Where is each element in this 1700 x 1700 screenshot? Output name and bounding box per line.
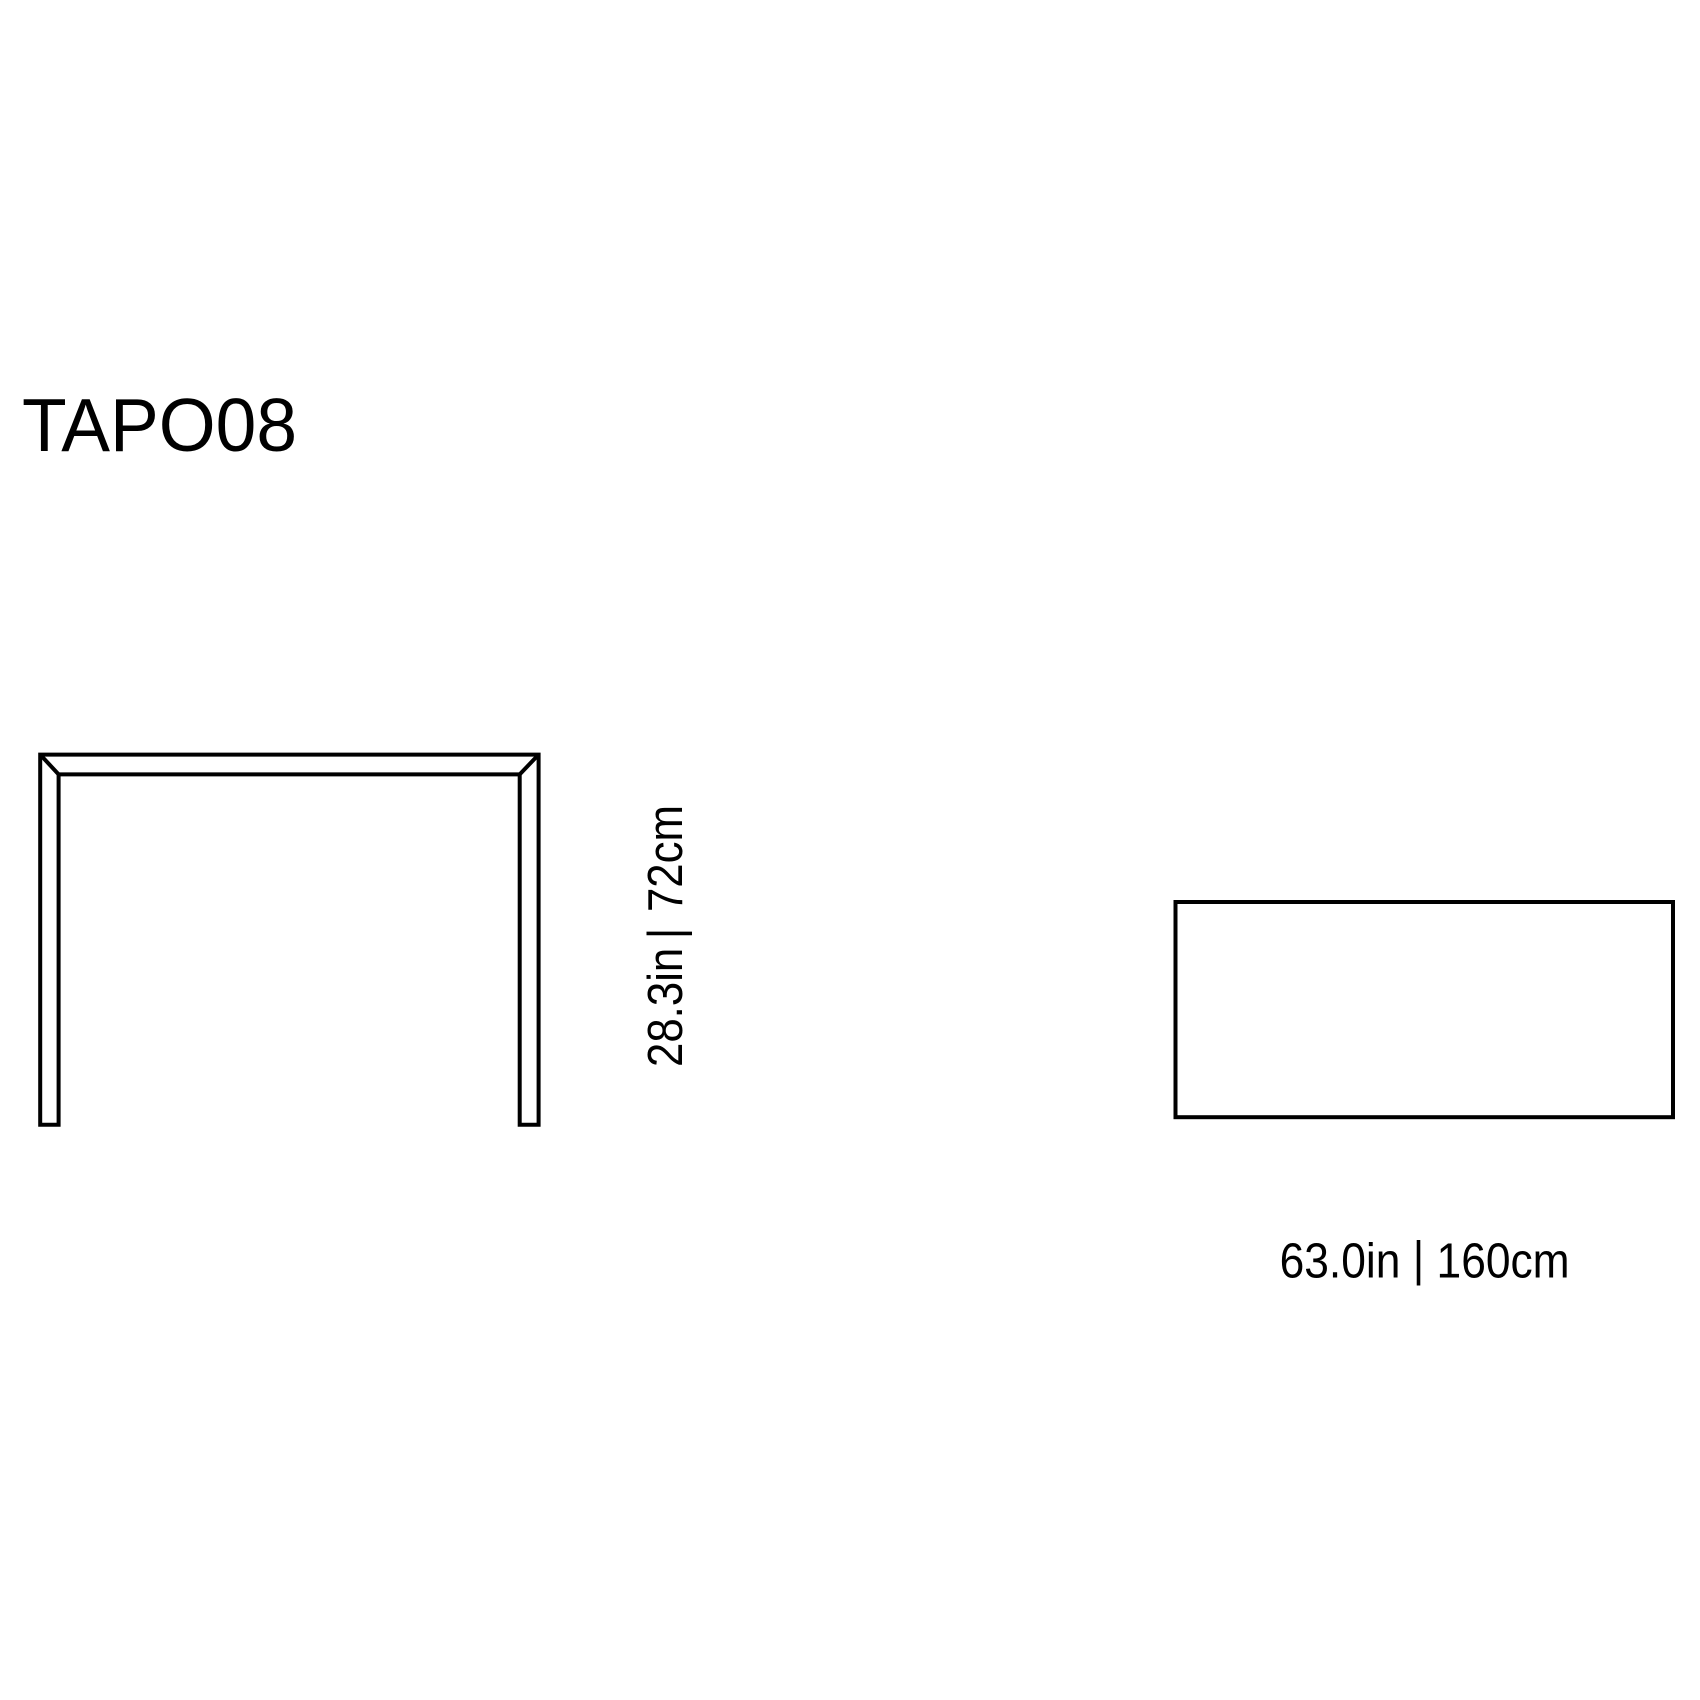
svg-text:28.3in | 72cm: 28.3in | 72cm [639, 805, 693, 1067]
svg-text:TAPO08: TAPO08 [22, 383, 297, 467]
svg-text:63.0in | 160cm: 63.0in | 160cm [1280, 1233, 1570, 1289]
